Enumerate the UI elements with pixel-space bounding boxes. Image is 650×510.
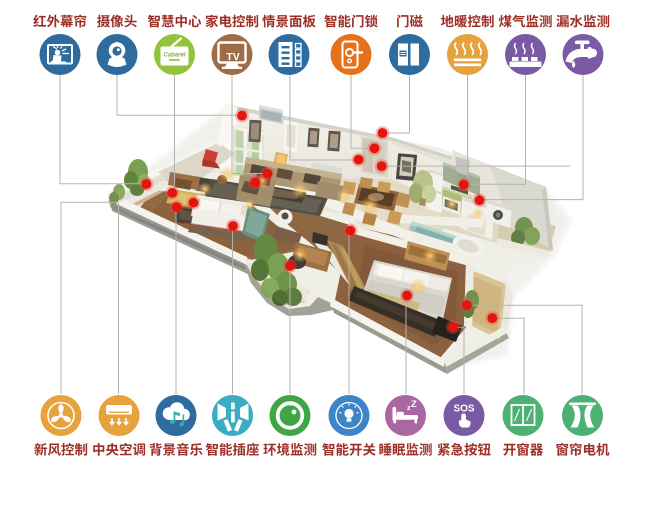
svg-text:TV: TV bbox=[226, 51, 239, 63]
svg-text:Cabarel: Cabarel bbox=[163, 53, 185, 59]
svg-text:SOS: SOS bbox=[453, 404, 474, 415]
svg-text:Z: Z bbox=[411, 399, 417, 410]
